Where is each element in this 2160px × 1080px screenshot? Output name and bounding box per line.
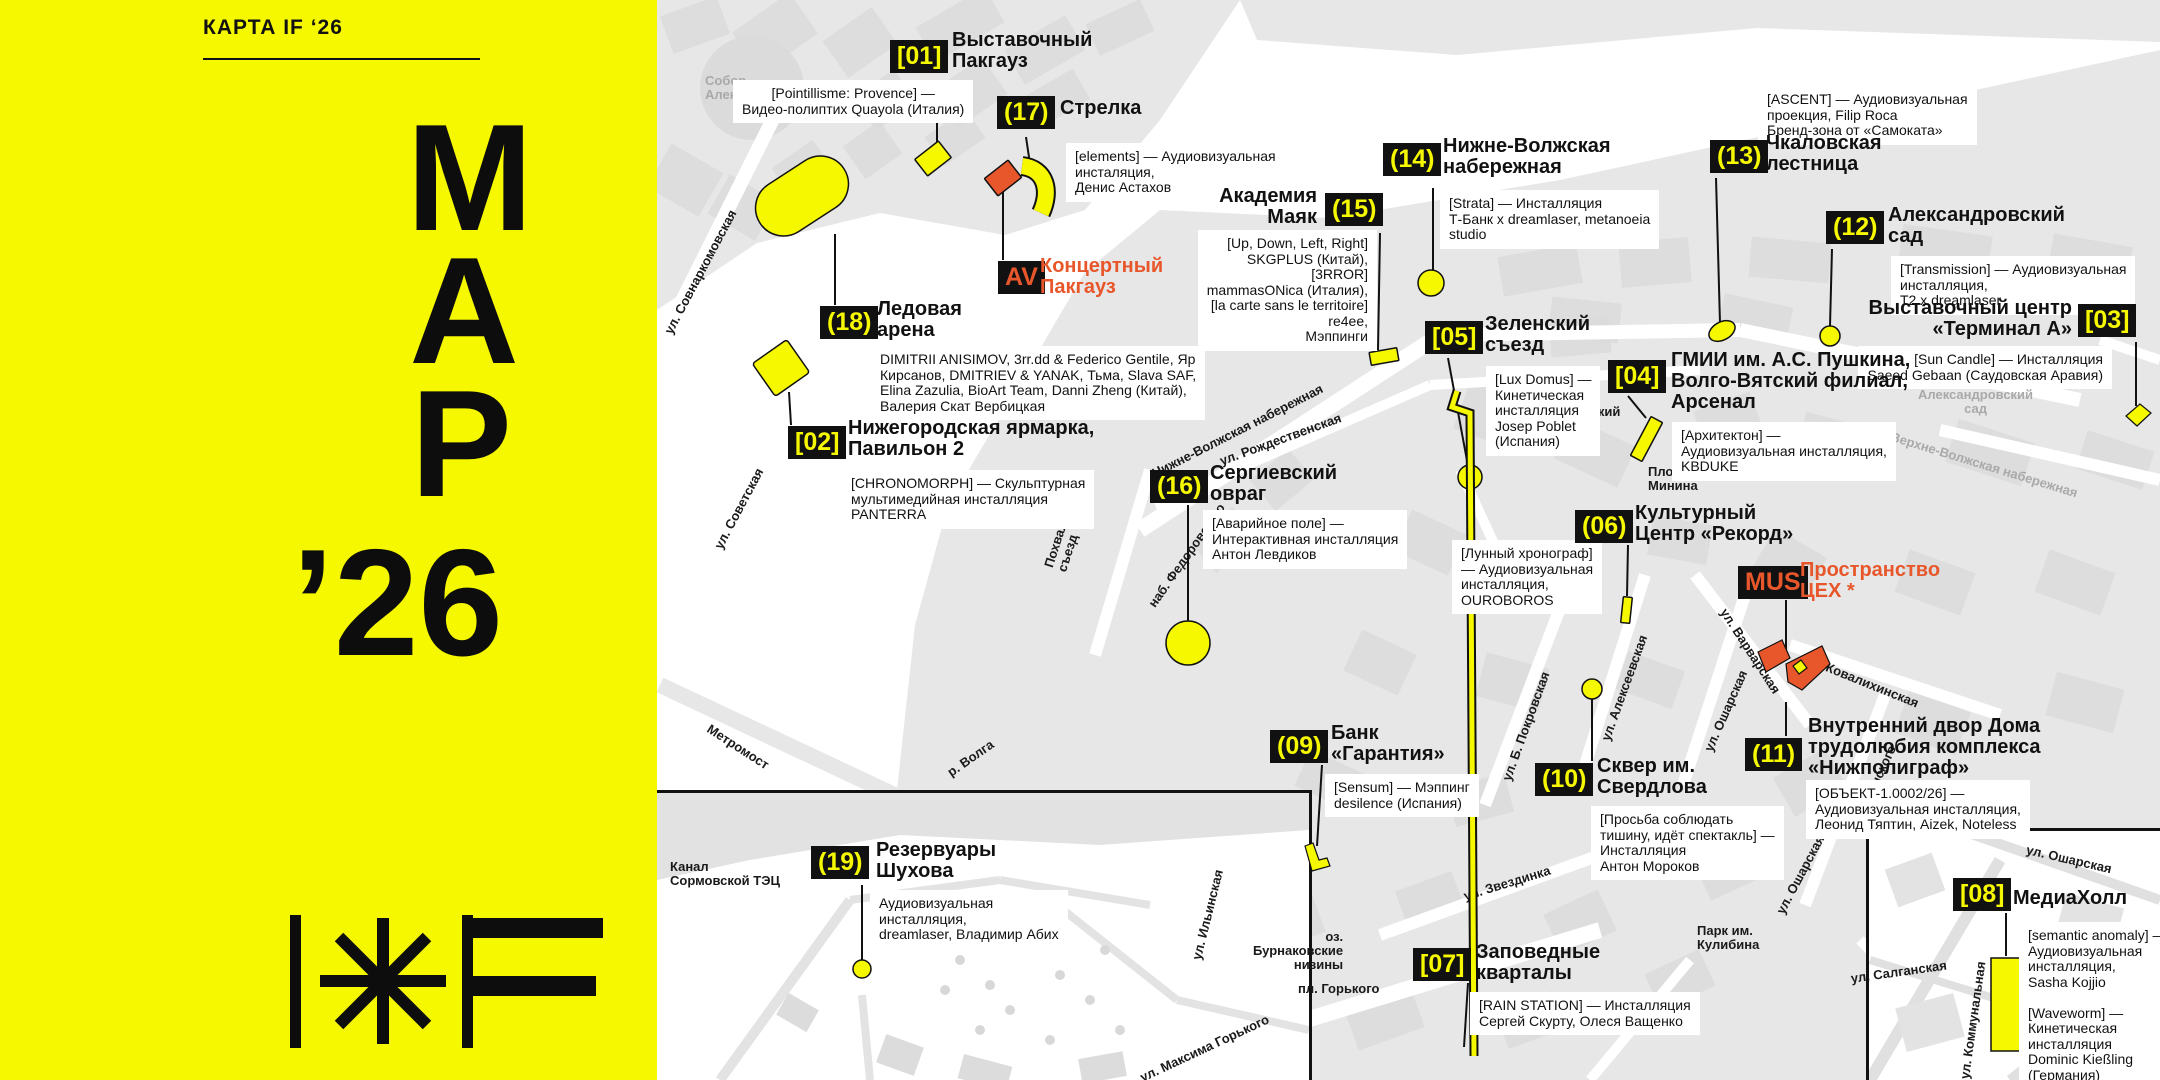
location-desc-15: [Up, Down, Left, Right] SKGPLUS (Китай),…	[1198, 230, 1377, 351]
location-badge-16[interactable]: (16)	[1150, 470, 1208, 503]
intervals-festival-logo	[290, 915, 605, 1048]
location-name-AV: Концертный Пакгауз	[1040, 256, 1163, 298]
location-name-15: Академия Маяк	[1219, 186, 1317, 228]
location-badge-05[interactable]: [05]	[1425, 321, 1483, 354]
location-name-08: МедиаХолл	[2013, 888, 2127, 909]
location-badge-03[interactable]: [03]	[2078, 304, 2136, 337]
location-name-06: Культурный Центр «Рекорд»	[1635, 503, 1793, 545]
location-badge-17[interactable]: (17)	[997, 96, 1055, 129]
location-name-09: Банк «Гарантия»	[1331, 723, 1445, 765]
location-name-17: Стрелка	[1060, 98, 1141, 119]
marker-m16-circle[interactable]	[1166, 621, 1210, 665]
location-desc-11: [ОБЪЕКТ-1.0002/26] — Аудиовизуальная инс…	[1806, 780, 2030, 839]
logo-i-bar	[290, 915, 301, 1048]
location-badge-10[interactable]: (10)	[1535, 763, 1593, 796]
location-desc-14: [Strata] — Инсталляция Т-Банк x dreamlas…	[1440, 190, 1659, 249]
location-desc-18: DIMITRII ANISIMOV, 3rr.dd & Federico Gen…	[871, 346, 1205, 420]
marker-m19-circle[interactable]	[853, 960, 871, 978]
location-desc-04: [Архитектон] — Аудиовизуальная инсталляц…	[1672, 422, 1896, 481]
poster-title-line: Р	[292, 378, 512, 511]
location-name-03: Выставочный центр «Терминал А»	[1869, 298, 2072, 340]
marker-m18-pill[interactable]	[745, 145, 859, 246]
location-name-14: Нижне-Волжская набережная	[1443, 136, 1611, 178]
logo-f-letter	[462, 915, 603, 1048]
location-name-12: Александровский сад	[1888, 205, 2065, 247]
location-name-18: Ледовая арена	[877, 299, 962, 341]
location-badge-19[interactable]: (19)	[811, 846, 869, 879]
location-name-10: Сквер им. Свердлова	[1597, 756, 1707, 798]
marker-m02-pavilion[interactable]	[752, 340, 809, 397]
poster-title-line: ’26	[292, 537, 503, 670]
location-badge-06[interactable]: (06)	[1575, 510, 1633, 543]
location-badge-08[interactable]: [08]	[1953, 878, 2011, 911]
location-name-13: Чкаловская лестница	[1766, 133, 1882, 175]
location-name-MUS: Пространство ЦЕХ *	[1800, 560, 1940, 602]
location-badge-12[interactable]: (12)	[1826, 211, 1884, 244]
location-badge-11[interactable]: (11)	[1745, 738, 1802, 771]
location-desc-05: [Lux Domus] — Кинетическая инсталляция J…	[1486, 366, 1600, 456]
map-kicker: КАРТА IF ‘26	[203, 16, 343, 40]
location-desc-07: [RAIN STATION] — Инсталляция Сергей Скур…	[1470, 992, 1700, 1035]
location-badge-15[interactable]: (15)	[1325, 193, 1383, 226]
marker-mMUS-b[interactable]	[1786, 646, 1830, 690]
sidebar: КАРТА IF ‘26 МАР’26	[0, 0, 657, 1080]
location-desc-10: [Просьба соблюдать тишину, идёт спектакл…	[1591, 806, 1784, 880]
poster-title: МАР’26	[292, 112, 533, 670]
location-badge-04[interactable]: [04]	[1608, 360, 1666, 393]
marker-m14-circle[interactable]	[1418, 270, 1444, 296]
marker-m09-flag[interactable]	[1305, 843, 1330, 871]
location-badge-09[interactable]: (09)	[1270, 730, 1328, 763]
marker-m10-circle[interactable]	[1582, 679, 1602, 699]
location-name-05: Зеленский съезд	[1485, 314, 1590, 356]
logo-asterisk-icon	[320, 918, 446, 1044]
map: ул. Совнаркомовскаяул. СоветскаяНижне-Во…	[657, 0, 2160, 1080]
marker-m01-b[interactable]	[984, 160, 1021, 196]
location-desc-16: [Аварийное поле] — Интерактивная инсталл…	[1203, 510, 1407, 569]
location-badge-14[interactable]: (14)	[1383, 143, 1441, 176]
location-desc-06: [Лунный хронограф] — Аудиовизуальная инс…	[1452, 540, 1602, 614]
kicker-underline	[203, 58, 480, 60]
location-desc-09: [Sensum] — Мэппинг desilence (Испания)	[1325, 774, 1479, 817]
marker-m06-bar[interactable]	[1621, 597, 1633, 624]
location-desc-19: Аудиовизуальная инсталляция, dreamlaser,…	[870, 890, 1068, 949]
location-name-19: Резервуары Шухова	[876, 840, 996, 882]
location-badge-13[interactable]: (13)	[1710, 140, 1768, 173]
marker-m04-bar[interactable]	[1630, 417, 1662, 462]
location-desc-02: [CHRONOMORPH] — Скульптурная мультимедий…	[842, 470, 1094, 529]
marker-m12-circle[interactable]	[1820, 326, 1840, 346]
marker-m13-ellipse[interactable]	[1705, 316, 1738, 345]
location-badge-02[interactable]: [02]	[788, 426, 846, 459]
marker-m03-diamond[interactable]	[2126, 404, 2151, 426]
location-desc-08: [semantic anomaly] — Аудиовизуальная инс…	[2019, 922, 2160, 1080]
location-name-16: Сергиевский овраг	[1210, 463, 1337, 505]
location-name-04: ГМИИ им. А.С. Пушкина, Волго-Вятский фил…	[1671, 350, 1910, 413]
location-badge-07[interactable]: [07]	[1413, 948, 1471, 981]
marker-m08-rect[interactable]	[1991, 958, 2020, 1051]
location-name-01: Выставочный Пакгауз	[952, 30, 1092, 72]
festival-map-poster: КАРТА IF ‘26 МАР’26 ул. Совнаркомовскаяу…	[0, 0, 2160, 1080]
marker-m01-a[interactable]	[915, 141, 952, 176]
location-name-07: Заповедные кварталы	[1476, 942, 1600, 984]
location-badge-AV[interactable]: AV	[998, 261, 1045, 294]
location-badge-18[interactable]: (18)	[820, 306, 878, 339]
location-desc-01: [Pointillisme: Provence] — Видео-полипти…	[733, 80, 973, 123]
location-badge-MUS[interactable]: MUS	[1738, 566, 1808, 599]
location-name-11: Внутренний двор Дома трудолюбия комплекс…	[1808, 716, 2041, 779]
location-badge-01[interactable]: [01]	[890, 40, 948, 73]
location-name-02: Нижегородская ярмарка, Павильон 2	[848, 418, 1094, 460]
